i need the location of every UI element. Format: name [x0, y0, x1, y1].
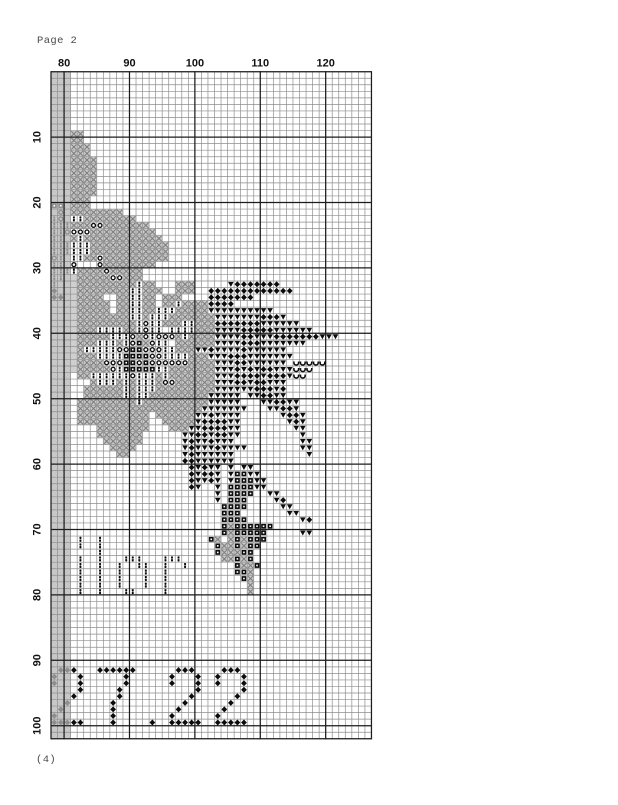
svg-text:30: 30	[32, 262, 44, 274]
svg-text:90: 90	[32, 654, 44, 666]
svg-text:100: 100	[32, 717, 44, 735]
svg-text:Page 2: Page 2	[37, 35, 77, 47]
svg-text:90: 90	[123, 58, 135, 70]
svg-text:40: 40	[32, 327, 44, 339]
svg-text:60: 60	[32, 458, 44, 470]
svg-text:80: 80	[58, 58, 70, 70]
svg-text:110: 110	[251, 58, 269, 70]
svg-text:120: 120	[317, 58, 335, 70]
svg-text:(4): (4)	[36, 754, 56, 766]
svg-text:70: 70	[32, 523, 44, 535]
svg-text:50: 50	[32, 393, 44, 405]
svg-text:80: 80	[32, 589, 44, 601]
svg-text:10: 10	[32, 131, 44, 143]
svg-text:20: 20	[32, 196, 44, 208]
svg-text:100: 100	[186, 58, 204, 70]
